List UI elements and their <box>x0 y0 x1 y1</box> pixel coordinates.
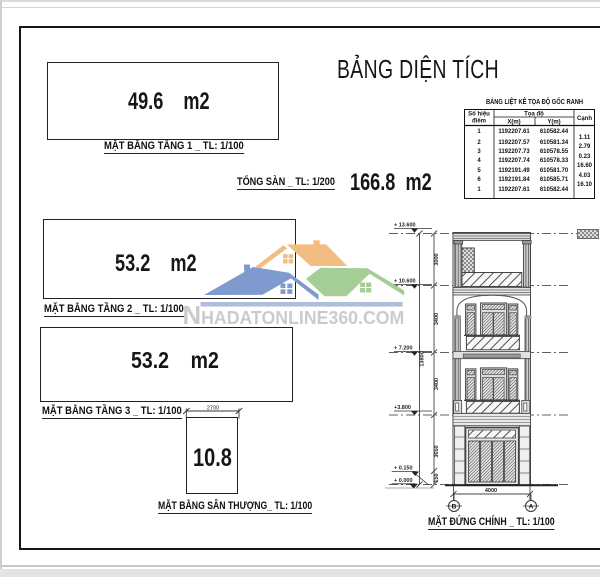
svg-text:610582.44: 610582.44 <box>540 187 569 193</box>
svg-text:+3.800: +3.800 <box>394 405 411 411</box>
svg-text:3400: 3400 <box>434 378 440 390</box>
svg-text:610582.44: 610582.44 <box>540 129 569 135</box>
svg-text:3400: 3400 <box>434 313 440 325</box>
svg-text:X(m): X(m) <box>507 120 520 126</box>
svg-text:4: 4 <box>477 158 481 164</box>
svg-text:1: 1 <box>477 187 481 193</box>
svg-text:610578.33: 610578.33 <box>540 158 569 164</box>
svg-text:+ 7.200: + 7.200 <box>394 346 413 352</box>
svg-text:B: B <box>452 504 457 511</box>
svg-text:1.11: 1.11 <box>579 135 591 141</box>
svg-text:1192207.74: 1192207.74 <box>498 158 530 164</box>
svg-text:16.10: 16.10 <box>577 182 593 188</box>
svg-text:2.79: 2.79 <box>579 144 591 150</box>
svg-text:13800: 13800 <box>420 351 426 366</box>
svg-text:3000: 3000 <box>434 253 440 265</box>
svg-text:16.60: 16.60 <box>577 163 593 169</box>
svg-text:4000: 4000 <box>485 488 497 494</box>
svg-text:610581.70: 610581.70 <box>540 168 569 174</box>
svg-text:2700: 2700 <box>207 405 219 411</box>
svg-text:1192207.73: 1192207.73 <box>498 149 530 155</box>
svg-text:+ 13.600: + 13.600 <box>394 223 416 229</box>
svg-text:1: 1 <box>477 129 481 135</box>
svg-text:Y(m): Y(m) <box>547 120 560 126</box>
svg-text:1192191.84: 1192191.84 <box>498 177 530 183</box>
svg-text:3: 3 <box>477 149 481 155</box>
svg-text:+ 0.150: + 0.150 <box>394 465 413 471</box>
svg-text:610578.55: 610578.55 <box>540 149 569 155</box>
svg-text:2: 2 <box>477 140 481 146</box>
svg-text:1192207.61: 1192207.61 <box>498 187 530 193</box>
svg-text:1192207.61: 1192207.61 <box>498 129 530 135</box>
svg-text:4.03: 4.03 <box>579 173 591 179</box>
svg-text:+ 0.000: + 0.000 <box>394 478 413 484</box>
svg-text:6: 6 <box>477 177 481 183</box>
svg-text:Số hiệu: Số hiệu <box>468 111 490 118</box>
svg-text:Cạnh: Cạnh <box>577 116 592 122</box>
svg-text:Tọa độ: Tọa độ <box>524 112 544 118</box>
svg-text:610581.34: 610581.34 <box>540 140 569 146</box>
svg-text:1192191.49: 1192191.49 <box>498 168 530 174</box>
svg-text:A: A <box>529 504 534 511</box>
svg-text:0.23: 0.23 <box>579 154 591 160</box>
svg-text:610585.71: 610585.71 <box>540 177 569 183</box>
svg-text:1192207.57: 1192207.57 <box>498 140 530 146</box>
svg-text:150: 150 <box>434 473 440 482</box>
svg-text:điểm: điểm <box>472 118 486 125</box>
svg-text:5: 5 <box>477 168 481 174</box>
svg-text:3650: 3650 <box>434 445 440 457</box>
